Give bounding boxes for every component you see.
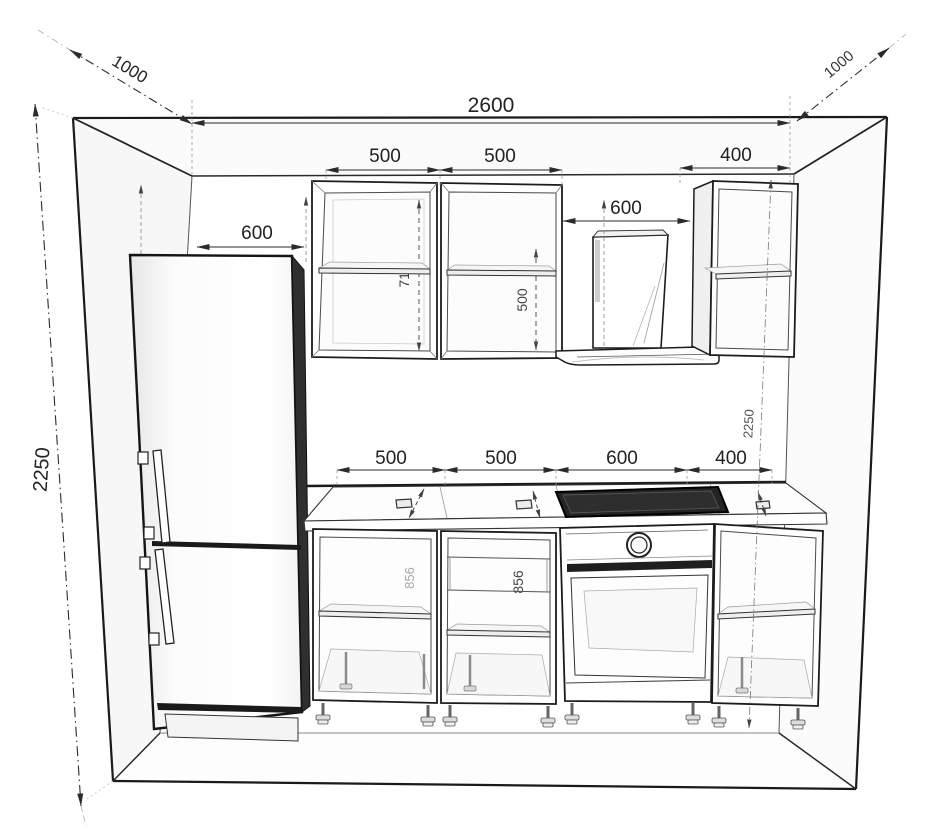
dim-400-base-label: 400 bbox=[715, 448, 747, 469]
dim-2250-right-label: 2250 bbox=[740, 409, 756, 439]
dim-600-base-label: 600 bbox=[606, 448, 638, 469]
dim-2250L-tail bbox=[81, 806, 86, 826]
wall-cabinet-1: 710 bbox=[312, 181, 437, 359]
wall-cab1-shelf bbox=[319, 268, 430, 274]
base-cabinet-3 bbox=[712, 524, 823, 706]
wall-cab2-height-label: 500 bbox=[514, 288, 530, 312]
countertop bbox=[304, 482, 827, 531]
oven-door-interior bbox=[584, 588, 697, 652]
fridge-plinth bbox=[165, 714, 298, 741]
oven-knob-inner bbox=[631, 537, 647, 553]
kitchen-elevation-drawing: 710 500 bbox=[0, 0, 943, 833]
oven-cabinet: 856 bbox=[560, 524, 714, 702]
dim-1000R-tail bbox=[889, 34, 906, 48]
dim-500-base2-label: 500 bbox=[485, 448, 517, 469]
dim-1000-right-label: 1000 bbox=[821, 47, 857, 81]
base-cab3-floor bbox=[718, 657, 812, 698]
refrigerator bbox=[130, 255, 310, 741]
hood-chimney-shade bbox=[595, 240, 600, 302]
wall-cabinet-2: 500 bbox=[441, 183, 562, 359]
base-cab1-height-label: 856 bbox=[402, 567, 417, 589]
counter-marker-2 bbox=[516, 500, 532, 509]
base-cab3-backleg-foot bbox=[736, 688, 748, 693]
dim-500-upper2-label: 500 bbox=[484, 146, 516, 167]
fridge-upper-handle-bracket-bottom bbox=[144, 527, 154, 539]
base-cab1-floor bbox=[319, 649, 431, 694]
dim-500-base1-label: 500 bbox=[375, 448, 407, 469]
fridge-lower-handle-bracket-bottom bbox=[149, 633, 159, 645]
fridge-upper-handle-bracket-top bbox=[138, 452, 148, 464]
base-cab2-floor bbox=[447, 653, 550, 696]
ceiling-front-edge bbox=[73, 117, 887, 118]
base-cab2-backleg-foot bbox=[464, 686, 476, 691]
ceiling-face bbox=[73, 117, 887, 176]
dim-500-upper1-label: 500 bbox=[369, 146, 401, 167]
base-cab1-backleg-foot bbox=[340, 684, 352, 689]
fridge-front bbox=[130, 255, 302, 729]
fridge-lower-handle-bracket-top bbox=[140, 557, 150, 569]
wall-cabinet-3 bbox=[692, 181, 798, 357]
dim-600-hood-label: 600 bbox=[610, 198, 642, 219]
dim-1000L-tail bbox=[38, 30, 70, 50]
base-cab2-height-label: 856 bbox=[510, 570, 526, 594]
dim-400-upper-label: 400 bbox=[720, 145, 752, 166]
dim-1000-left-label: 1000 bbox=[109, 51, 151, 87]
dim-2250L-conn-bottom bbox=[84, 781, 113, 801]
dim-600-fridge-label: 600 bbox=[241, 223, 273, 244]
dim-2250-left-label: 2250 bbox=[29, 447, 54, 493]
dim-2250L-conn-top bbox=[40, 107, 73, 118]
drawing-svg: 710 500 bbox=[0, 0, 943, 833]
wall-cab2-shelf bbox=[447, 270, 556, 276]
base-cabinet-1: 856 bbox=[313, 529, 437, 703]
floor-face bbox=[113, 733, 856, 789]
dim-2600-label: 2600 bbox=[468, 94, 515, 117]
base-cabinet-2: 856 bbox=[441, 531, 556, 704]
counter-marker-1 bbox=[396, 499, 412, 508]
